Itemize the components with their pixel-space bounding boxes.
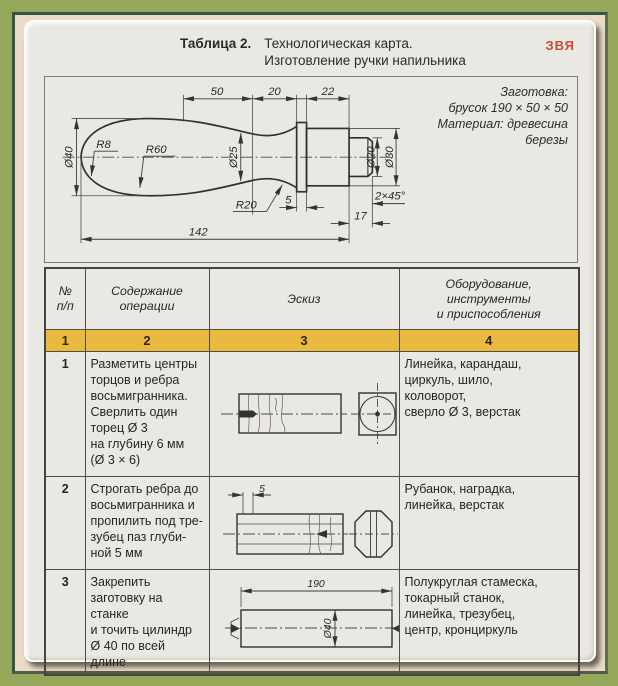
column-number-row: 1 2 3 4 <box>45 330 579 352</box>
row2-equipment: Рубанок, наградка, линейка, верстак <box>399 477 579 570</box>
page: { "palette": { "frame_green": "#95a85a",… <box>0 0 618 686</box>
title-line1: Технологическая карта. <box>264 35 466 52</box>
row3-sketch-cell: 190 Ø40 <box>209 570 399 676</box>
watermark-text: ЗВЯ <box>545 38 575 53</box>
row1-sketch-cell <box>209 352 399 477</box>
table-header-row: № п/п Содержание операции Эскиз Оборудов… <box>45 268 579 330</box>
title-lines: Технологическая карта. Изготовление ручк… <box>264 35 466 69</box>
drawing-panel: 50 20 22 Ø40 Ø25 Ø20 <box>44 76 578 263</box>
row2-sketch-cell: 5 <box>209 477 399 570</box>
table-number-label: Таблица 2. <box>180 35 251 69</box>
title-block: Таблица 2. Технологическая карта. Изгото… <box>180 35 466 69</box>
svg-text:Ø20: Ø20 <box>365 146 377 169</box>
colnum-4: 4 <box>399 330 579 352</box>
dim-top-chain: 50 20 22 <box>183 86 349 215</box>
svg-text:5: 5 <box>285 195 292 207</box>
colnum-2: 2 <box>85 330 209 352</box>
row3-equipment: Полукруглая стамеска, токарный станок, л… <box>399 570 579 676</box>
table-row-2: 2 Строгать ребра до восьмигранника и про… <box>45 477 579 570</box>
dim-total142: 142 <box>81 162 349 243</box>
header-col-sketch: Эскиз <box>209 268 399 330</box>
row3-operation: Закрепить заготовку на станке и точить ц… <box>85 570 209 676</box>
table-row-3: 3 Закрепить заготовку на станке и точить… <box>45 570 579 676</box>
blank-material-note: Заготовка: брусок 190 × 50 × 50 Материал… <box>438 84 569 148</box>
saw-kerf <box>316 530 327 538</box>
row1-num: 1 <box>45 352 85 477</box>
svg-text:5: 5 <box>259 483 265 495</box>
row1-operation: Разметить центры торцов и ребра восьмигр… <box>85 352 209 477</box>
svg-text:190: 190 <box>307 578 325 590</box>
svg-text:50: 50 <box>211 86 224 98</box>
svg-text:Ø30: Ø30 <box>384 146 396 169</box>
sketch-octagon-blank: 5 <box>215 481 400 561</box>
colnum-3: 3 <box>209 330 399 352</box>
end-view-square <box>351 383 400 445</box>
header-col-operation: Содержание операции <box>85 268 209 330</box>
row3-num: 3 <box>45 570 85 676</box>
title-line2: Изготовление ручки напильника <box>264 52 466 69</box>
row2-operation: Строгать ребра до восьмигранника и пропи… <box>85 477 209 570</box>
svg-text:R20: R20 <box>236 200 258 212</box>
svg-text:2×45°: 2×45° <box>374 191 406 203</box>
radius-labels: R8 R60 R20 <box>91 139 282 211</box>
dim-5: 5 <box>228 483 271 514</box>
dim-disc5: 5 <box>279 192 324 212</box>
svg-text:20: 20 <box>267 86 281 98</box>
dim-dia40: Ø40 <box>322 610 335 647</box>
drilled-hole <box>239 411 257 418</box>
header-col-equipment: Оборудование, инструменты и приспособлен… <box>399 268 579 330</box>
colnum-1: 1 <box>45 330 85 352</box>
row2-num: 2 <box>45 477 85 570</box>
operations-table: № п/п Содержание операции Эскиз Оборудов… <box>44 267 580 676</box>
row1-equipment: Линейка, карандаш, циркуль, шило, колово… <box>399 352 579 477</box>
end-view-octagon <box>349 511 398 557</box>
header-col-num: № п/п <box>45 268 85 330</box>
svg-text:Ø40: Ø40 <box>64 146 76 169</box>
sketch-turned-cylinder: 190 Ø40 <box>215 574 400 659</box>
svg-text:R8: R8 <box>96 139 111 151</box>
svg-text:22: 22 <box>320 86 334 98</box>
dim-chamfer: 2×45° <box>372 176 405 227</box>
svg-text:142: 142 <box>189 226 209 238</box>
sketch-marked-blank <box>215 356 400 468</box>
dim-190: 190 <box>241 578 392 607</box>
svg-text:Ø40: Ø40 <box>322 618 334 639</box>
dim-dia25: Ø25 <box>228 133 241 181</box>
svg-text:Ø25: Ø25 <box>228 146 240 169</box>
svg-text:R60: R60 <box>146 144 168 156</box>
worksheet-card: Таблица 2. Технологическая карта. Изгото… <box>24 20 596 662</box>
table-row-1: 1 Разметить центры торцов и ребра восьми… <box>45 352 579 477</box>
lathe-centers <box>231 618 400 639</box>
svg-text:17: 17 <box>354 210 367 222</box>
